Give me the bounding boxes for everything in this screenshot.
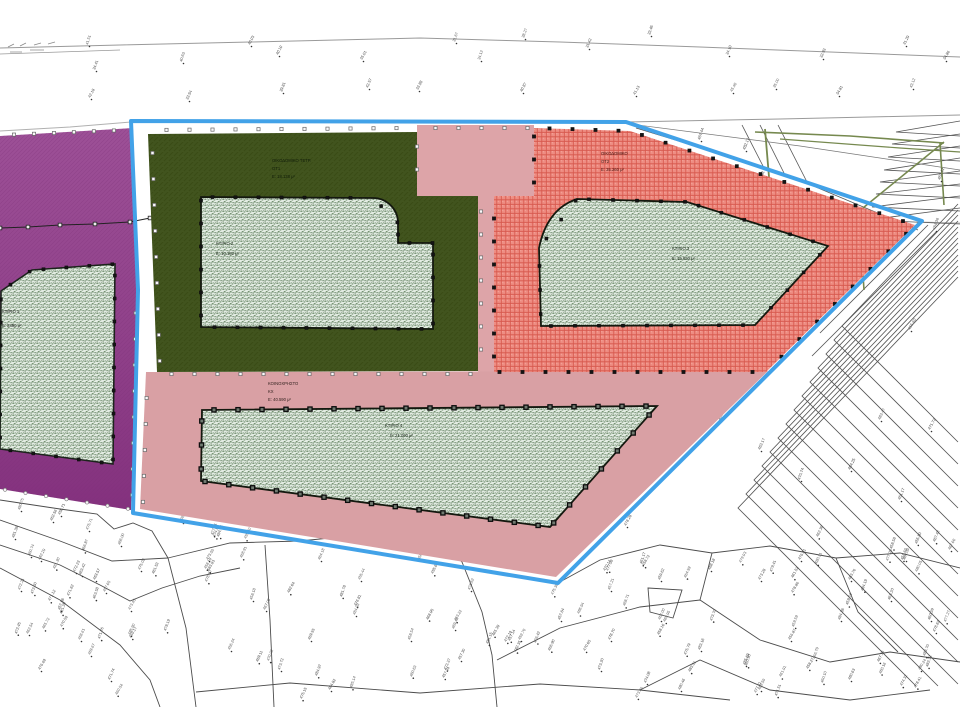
svg-text:Ε: 2450 μ²: Ε: 2450 μ² xyxy=(2,323,22,328)
svg-text:Ε: 10.180 μ²: Ε: 10.180 μ² xyxy=(216,251,240,256)
svg-text:ΚΤΙΡΙΟ 1: ΚΤΙΡΙΟ 1 xyxy=(2,309,20,314)
svg-text:Ε: 21.000 μ²: Ε: 21.000 μ² xyxy=(390,433,414,438)
svg-text:ΚΤΙΡΙΟ 4: ΚΤΙΡΙΟ 4 xyxy=(385,423,403,428)
svg-text:Ε: 40.590 μ²: Ε: 40.590 μ² xyxy=(268,397,292,402)
svg-text:ΟΙΚΟΔΟΜΙΚΟ: ΟΙΚΟΔΟΜΙΚΟ xyxy=(601,151,629,156)
svg-text:Ε: 35.260 μ²: Ε: 35.260 μ² xyxy=(601,167,625,172)
svg-text:ΟΤ1: ΟΤ1 xyxy=(272,166,281,171)
svg-text:ΚΧ: ΚΧ xyxy=(268,389,274,394)
svg-text:ΚΟΙΝΟΧΡΗΣΤΟ: ΚΟΙΝΟΧΡΗΣΤΟ xyxy=(268,381,299,386)
svg-text:ΟΙΚΟΔΟΜΙΚΟ ΤΕΤΡ.: ΟΙΚΟΔΟΜΙΚΟ ΤΕΤΡ. xyxy=(272,158,311,163)
svg-text:ΚΤΙΡΙΟ 2: ΚΤΙΡΙΟ 2 xyxy=(216,241,234,246)
svg-text:ΚΤΙΡΙΟ 3: ΚΤΙΡΙΟ 3 xyxy=(672,246,690,251)
svg-text:ΟΤ2: ΟΤ2 xyxy=(601,159,610,164)
svg-text:Ε: 18.138 μ²: Ε: 18.138 μ² xyxy=(272,174,296,179)
svg-text:Ε: 15.930 μ²: Ε: 15.930 μ² xyxy=(672,256,696,261)
